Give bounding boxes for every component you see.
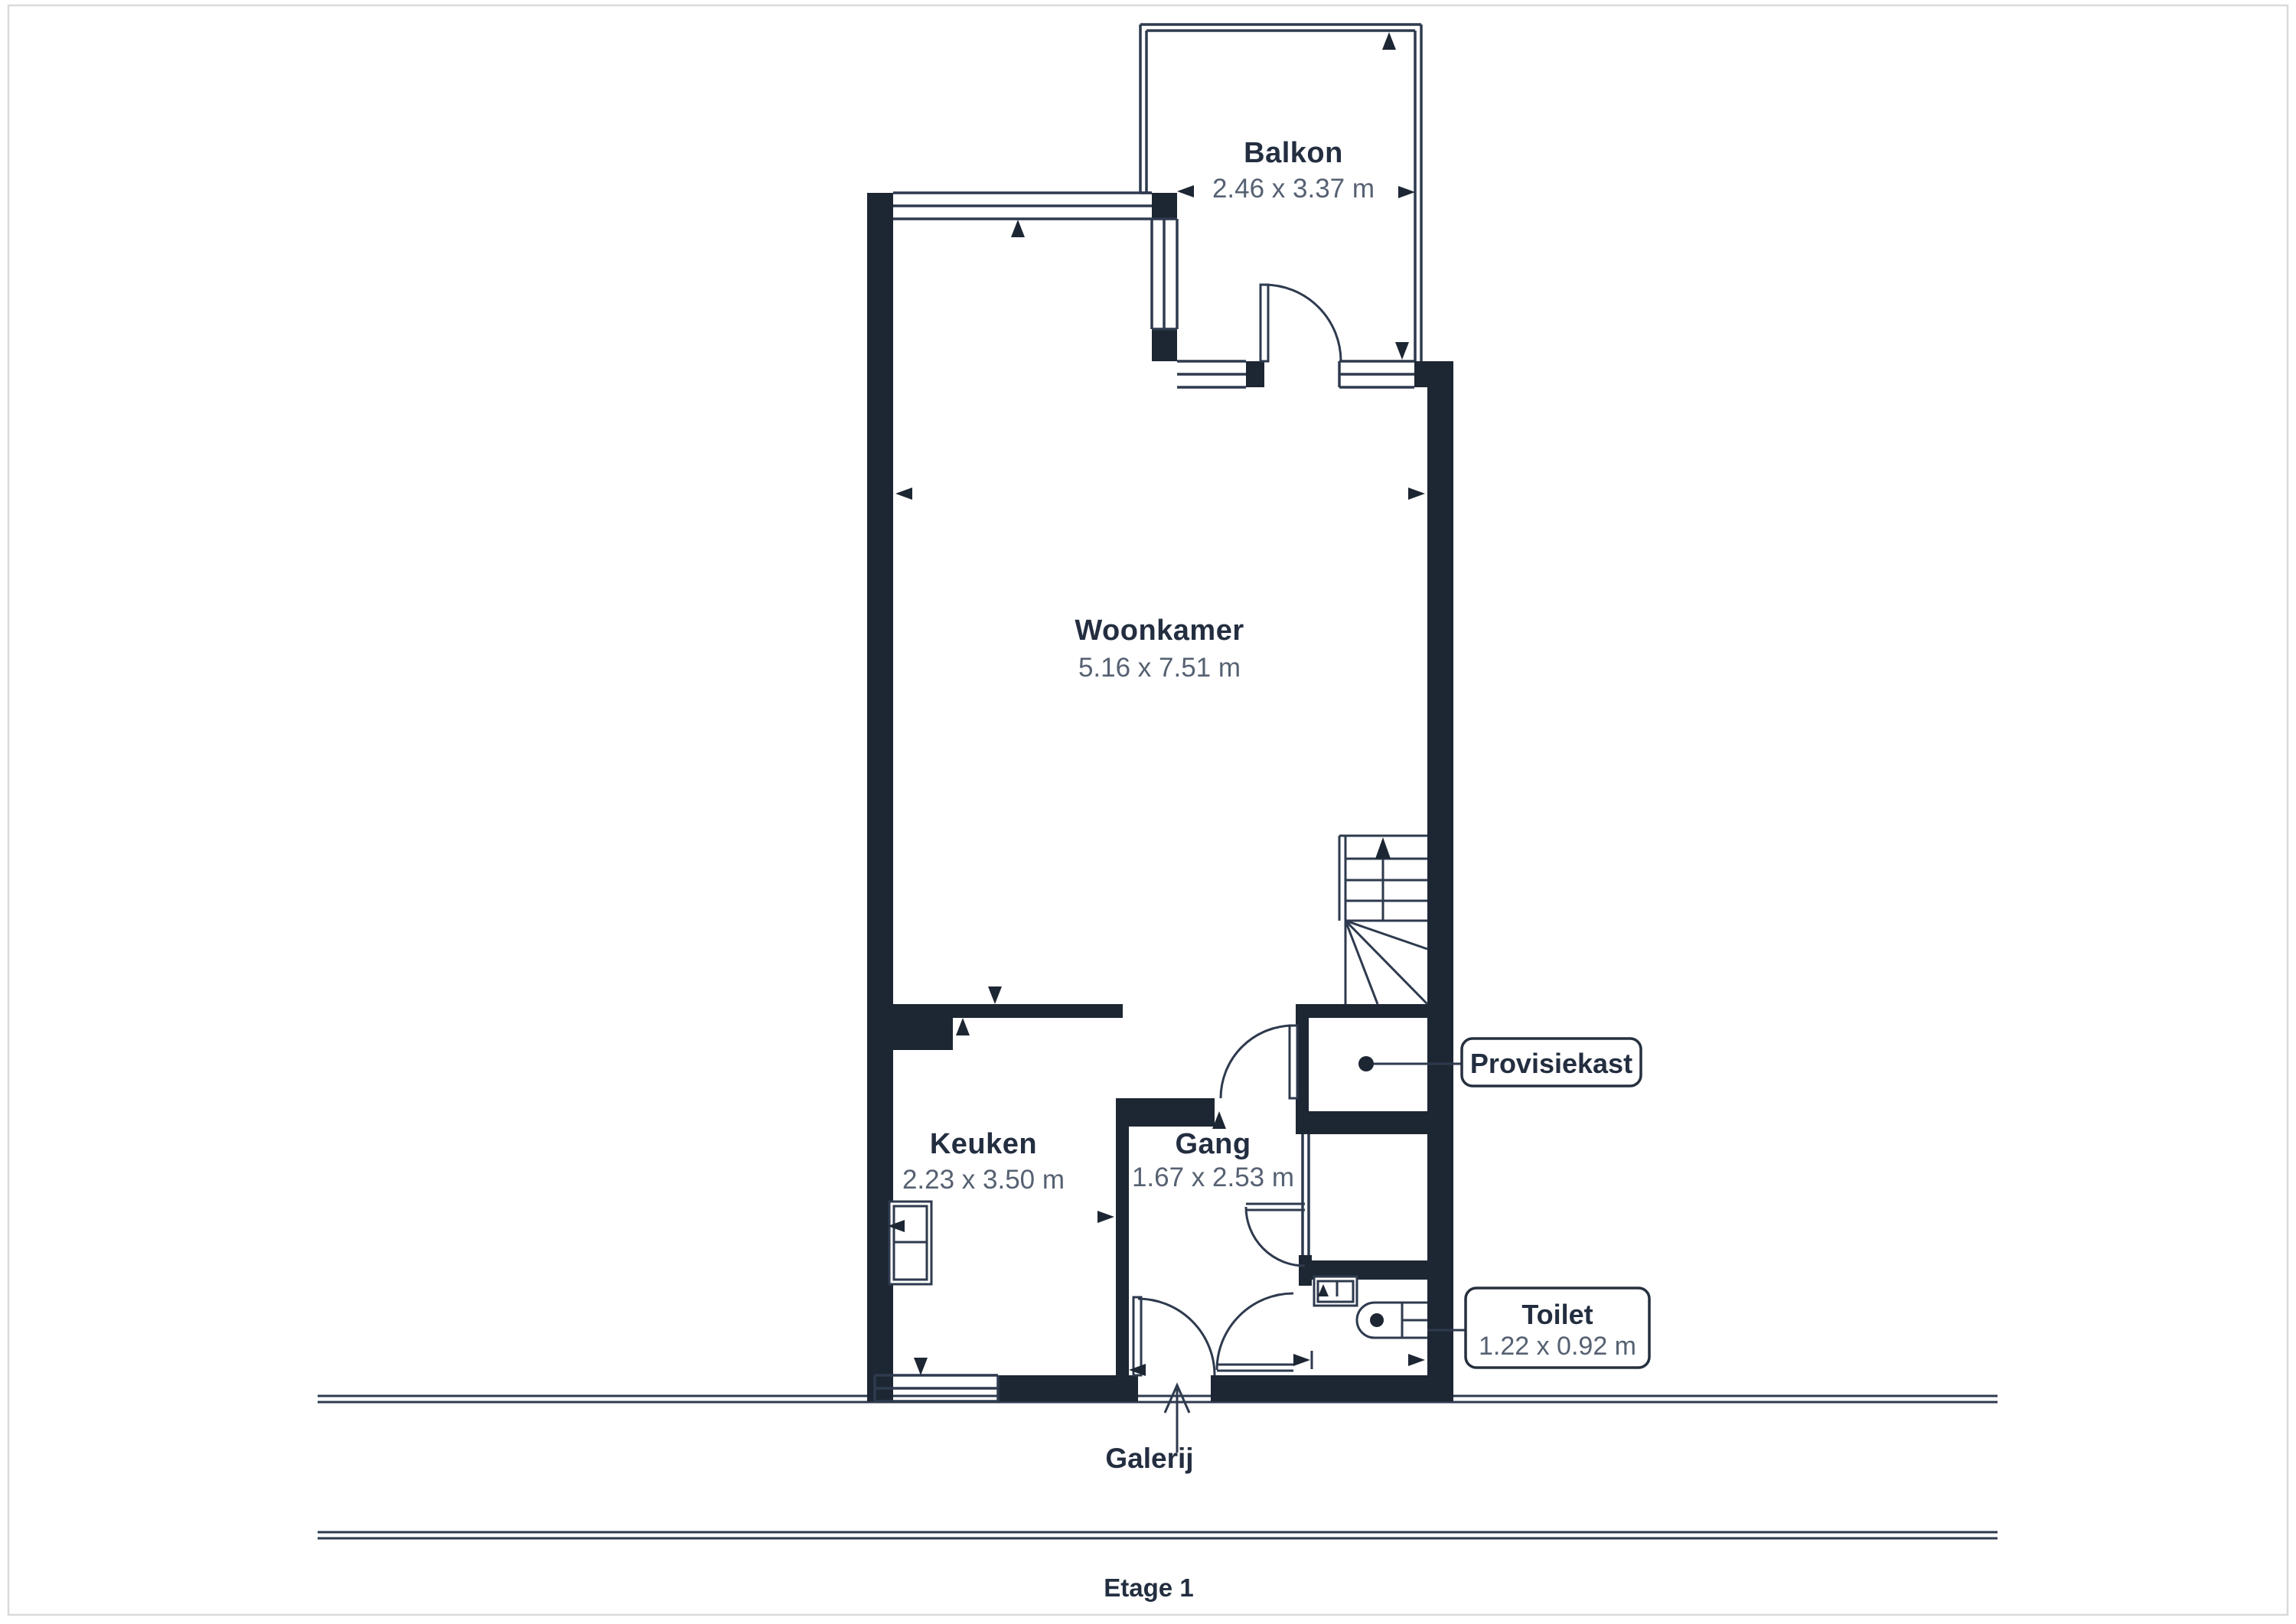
room-label-balkon: Balkon: [1244, 137, 1343, 169]
marker-left-icon: [895, 488, 912, 500]
floorplan-svg: Provisiekast Toilet 1.22 x 0.92 m Balkon…: [0, 0, 2296, 1624]
room-label-woonkamer: Woonkamer: [1075, 615, 1244, 647]
marker-up-icon: [1011, 220, 1025, 237]
marker-right-icon: [1097, 1211, 1114, 1223]
room-dims-woonkamer: 5.16 x 7.51 m: [1078, 653, 1241, 683]
floorplan-page: Provisiekast Toilet 1.22 x 0.92 m Balkon…: [0, 0, 2296, 1624]
room-label-gang: Gang: [1175, 1128, 1251, 1160]
room-label-keuken: Keuken: [930, 1128, 1037, 1160]
room-dims-gang: 1.67 x 2.53 m: [1132, 1163, 1294, 1192]
wall-bottom-right: [1211, 1375, 1453, 1401]
toilet-label: Toilet: [1521, 1299, 1593, 1330]
marker-left-icon: [1177, 185, 1194, 197]
kitchen-sink: [889, 1202, 931, 1284]
toilet-sink: [1314, 1277, 1357, 1306]
floor-label: Etage 1: [1104, 1573, 1193, 1602]
wall-right: [1427, 387, 1453, 1401]
marker-right-icon: [1398, 186, 1415, 198]
wall-block-a: [1152, 193, 1177, 219]
marker-down-icon: [988, 986, 1002, 1004]
toilet-callout: Toilet 1.22 x 0.92 m: [1427, 1288, 1649, 1368]
galerij-label: Galerij: [1105, 1443, 1193, 1474]
marker-right-icon: [1293, 1354, 1310, 1366]
window-woonkamer-balcony-side: [1152, 219, 1177, 329]
window-woonkamer-top: [893, 193, 1152, 219]
marker-down-icon: [914, 1358, 928, 1375]
marker-up-icon: [1382, 32, 1396, 50]
marker-up-icon: [956, 1018, 970, 1035]
wc-flush-dot: [1370, 1313, 1384, 1327]
wall-gang-left: [1116, 1098, 1129, 1401]
window-balcony-wall-right: [1339, 361, 1414, 387]
wall-bottom-mid: [998, 1375, 1138, 1401]
closet-door: [1246, 1204, 1305, 1266]
provisiekast-label: Provisiekast: [1470, 1048, 1632, 1079]
wall-stairs-bottom: [1296, 1004, 1453, 1018]
windows: [875, 193, 1414, 1401]
room-dims-keuken: 2.23 x 3.50 m: [902, 1165, 1065, 1195]
wall-gang-top: [1116, 1098, 1215, 1127]
balcony-door: [1261, 285, 1341, 361]
marker-right-icon: [1408, 1354, 1425, 1366]
wc-fixture: [1357, 1303, 1427, 1338]
gang-door: [1221, 1026, 1297, 1098]
page-border: [8, 5, 2288, 1615]
wall-keuken-top: [867, 1004, 1123, 1018]
wall-provisiekast-bottom: [1296, 1111, 1427, 1134]
wall-balcony-door-post: [1246, 361, 1264, 387]
front-door: [1133, 1297, 1215, 1375]
window-balcony-wall-left: [1177, 361, 1246, 387]
window-keuken-bottom: [875, 1375, 998, 1401]
marker-right-icon: [1408, 488, 1425, 500]
toilet-door: [1217, 1293, 1293, 1371]
window-gang-closet: [1303, 1134, 1309, 1255]
room-dims-balkon: 2.46 x 3.37 m: [1212, 174, 1375, 204]
wall-corner-ne: [1414, 361, 1453, 387]
stairs-up-arrow-icon: [1375, 837, 1391, 859]
stairs: [1339, 836, 1427, 1004]
wall-block-b: [1152, 329, 1177, 361]
provisiekast-dot: [1358, 1056, 1374, 1071]
toilet-dims: 1.22 x 0.92 m: [1479, 1332, 1636, 1361]
provisiekast-callout: Provisiekast: [1358, 1039, 1641, 1086]
marker-down-icon: [1395, 342, 1409, 360]
wall-keuken-chimney: [867, 1018, 953, 1050]
